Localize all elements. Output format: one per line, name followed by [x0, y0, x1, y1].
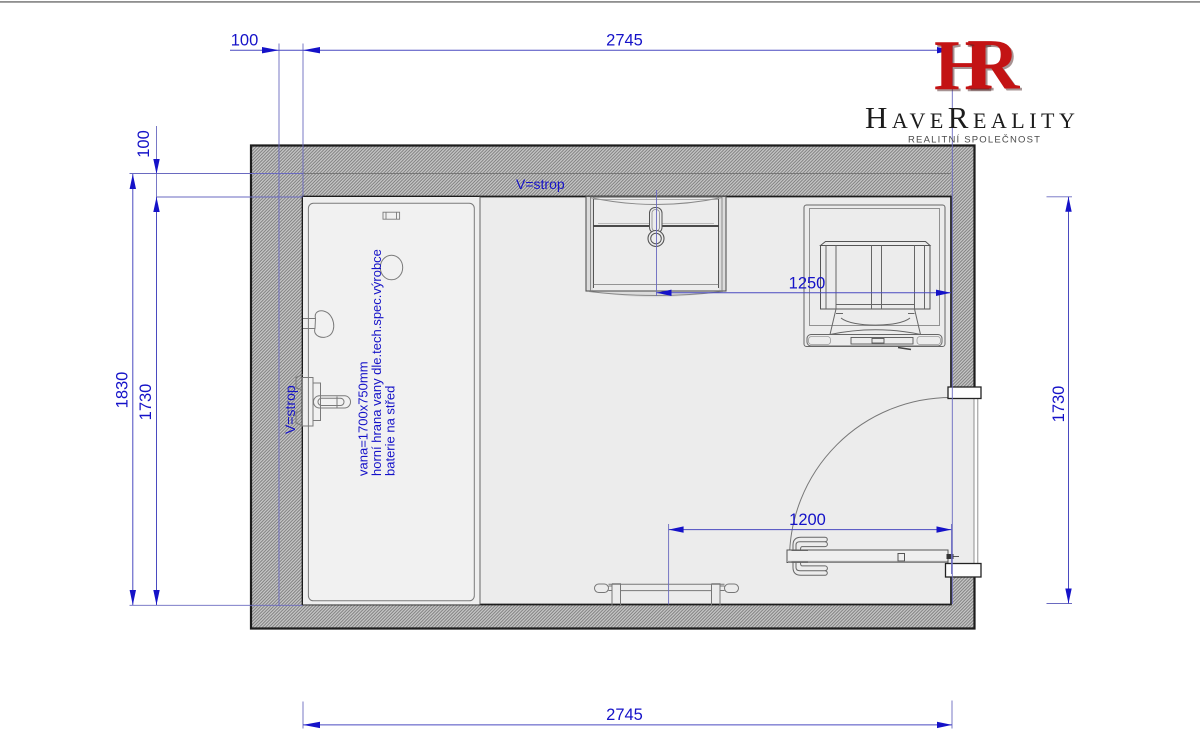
- svg-text:baterie na střed: baterie na střed: [383, 386, 398, 476]
- svg-text:2745: 2745: [606, 706, 643, 724]
- svg-text:1200: 1200: [789, 511, 826, 529]
- svg-text:REALITNÍ SPOLEČNOST: REALITNÍ SPOLEČNOST: [908, 135, 1041, 146]
- svg-text:1250: 1250: [789, 275, 826, 293]
- svg-text:R: R: [967, 24, 1020, 105]
- svg-text:1730: 1730: [137, 384, 155, 421]
- svg-text:1830: 1830: [114, 372, 132, 409]
- svg-text:V=strop: V=strop: [516, 176, 565, 192]
- svg-text:V=strop: V=strop: [282, 385, 298, 434]
- svg-text:100: 100: [135, 130, 153, 158]
- svg-text:1730: 1730: [1050, 386, 1068, 423]
- svg-text:100: 100: [231, 32, 259, 50]
- svg-text:2745: 2745: [606, 32, 643, 50]
